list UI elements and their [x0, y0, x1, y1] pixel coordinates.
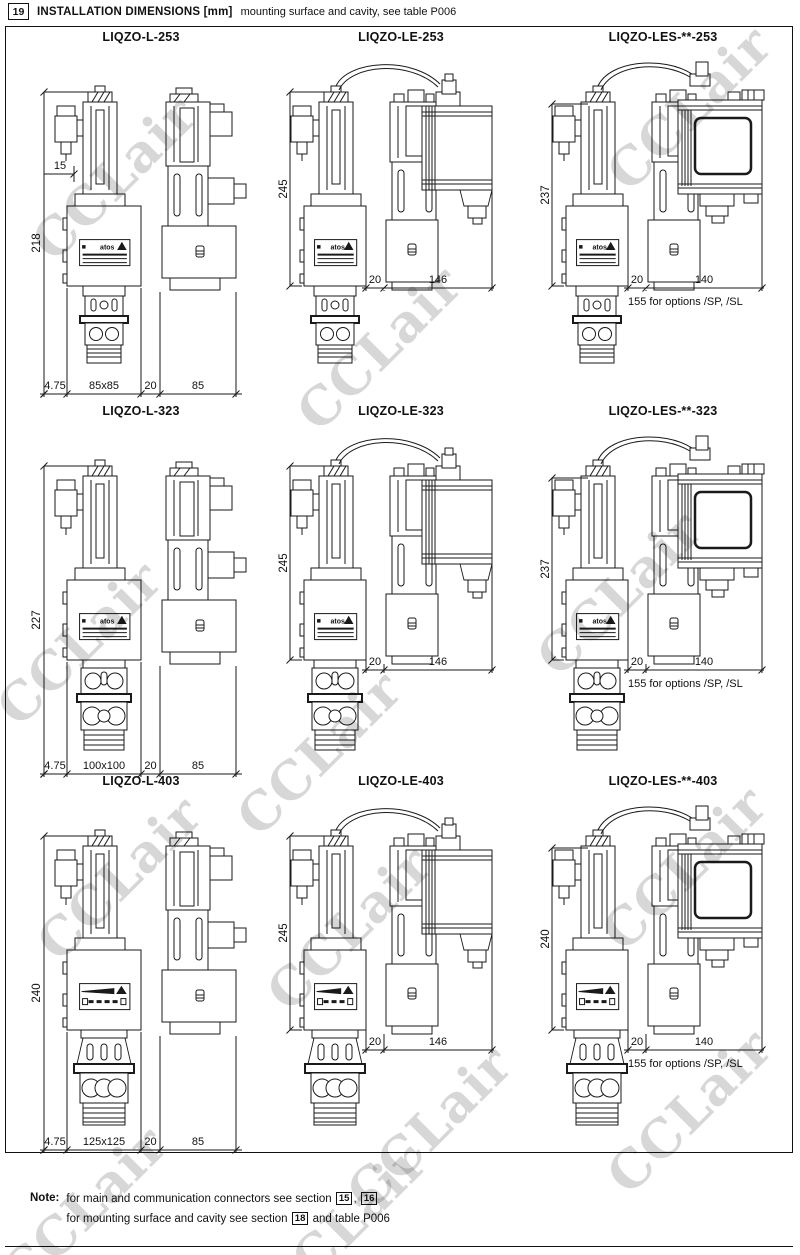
- dim-width: 140: [695, 1036, 713, 1048]
- note-separator: ,: [353, 1193, 356, 1205]
- drawing-title: LIQZO-L-253: [10, 30, 272, 48]
- dim-surface: 85x85: [89, 380, 119, 392]
- brand-label: atos: [331, 619, 346, 626]
- dim-gap: 20: [369, 656, 381, 668]
- dim-gap: 20: [144, 760, 156, 772]
- dim-spacer: 4.75: [44, 1136, 65, 1148]
- valve-drawing-cell: LIQZO-L-323atos2274.75100x1002085: [10, 404, 272, 791]
- note-line2-suffix: and table P006: [313, 1213, 390, 1225]
- drawing-title: LIQZO-LE-323: [270, 404, 532, 422]
- dim-width: 85: [192, 380, 204, 392]
- drawing-title: LIQZO-LES-**-253: [532, 30, 794, 48]
- brand-label: atos: [593, 245, 608, 252]
- note-line-1: for main and communication connectors se…: [66, 1192, 390, 1207]
- valve-drawing-cell: LIQZO-LES-**-40324020140155 for options …: [532, 774, 794, 1161]
- valve-drawing-cell: LIQZO-L-253atos218154.7585x852085: [10, 30, 272, 417]
- section-ref-15: 15: [336, 1192, 353, 1205]
- dim-spacer: 4.75: [44, 760, 65, 772]
- dim-height: 218: [31, 233, 43, 252]
- dim-gap: 20: [144, 1136, 156, 1148]
- note-line1-text: for main and communication connectors se…: [66, 1193, 331, 1205]
- valve-drawing-cell: LIQZO-LE-253atos24520146: [270, 30, 532, 417]
- valve-drawing-cell: LIQZO-LES-**-253atos23720140155 for opti…: [532, 30, 794, 417]
- brand-label: atos: [593, 619, 608, 626]
- dim-width: 146: [429, 1036, 447, 1048]
- drawing-title: LIQZO-L-323: [10, 404, 272, 422]
- dim-width: 146: [429, 274, 447, 286]
- note-line2-text: for mounting surface and cavity see sect…: [66, 1213, 287, 1225]
- dim-width: 85: [192, 1136, 204, 1148]
- dim-surface: 125x125: [83, 1136, 125, 1148]
- dim-height: 245: [278, 179, 290, 198]
- note-label: Note:: [30, 1192, 59, 1232]
- brand-label: atos: [331, 245, 346, 252]
- valve-drawing: 24520146: [270, 792, 532, 1156]
- drawing-title: LIQZO-LES-**-403: [532, 774, 794, 792]
- drawing-title: LIQZO-LE-253: [270, 30, 532, 48]
- valve-drawing: atos2274.75100x1002085: [10, 422, 272, 786]
- option-note: 155 for options /SP, /SL: [628, 1058, 743, 1070]
- datasheet-page: 19 INSTALLATION DIMENSIONS [mm] mounting…: [0, 0, 800, 1255]
- dim-gap: 20: [369, 1036, 381, 1048]
- drawing-title: LIQZO-L-403: [10, 774, 272, 792]
- valve-drawing-cell: LIQZO-L-4032404.75125x1252085: [10, 774, 272, 1161]
- brand-label: atos: [100, 245, 115, 252]
- valve-drawing-cell: LIQZO-LE-323atos24520146: [270, 404, 532, 791]
- dim-height: 237: [540, 185, 552, 204]
- dim-surface: 100x100: [83, 760, 125, 772]
- dim-gap: 20: [631, 274, 643, 286]
- bottom-rule: [5, 1246, 793, 1247]
- note-line-2: for mounting surface and cavity see sect…: [66, 1212, 390, 1227]
- dim-height: 227: [31, 610, 43, 629]
- valve-drawing: 24020140155 for options /SP, /SL: [532, 792, 794, 1156]
- dim-gap: 20: [631, 1036, 643, 1048]
- dim-width: 146: [429, 656, 447, 668]
- brand-label: atos: [100, 619, 115, 626]
- valve-drawing-cell: LIQZO-LES-**-323atos23720140155 for opti…: [532, 404, 794, 791]
- option-note: 155 for options /SP, /SL: [628, 678, 743, 690]
- valve-drawing: 2404.75125x1252085: [10, 792, 272, 1156]
- section-ref-16: 16: [361, 1192, 378, 1205]
- dim-gap: 20: [631, 656, 643, 668]
- valve-drawing: atos23720140155 for options /SP, /SL: [532, 422, 794, 786]
- dim-height: 245: [278, 553, 290, 572]
- option-note: 155 for options /SP, /SL: [628, 296, 743, 308]
- dim-width: 140: [695, 656, 713, 668]
- dim-offset: 15: [54, 160, 66, 172]
- dim-width: 140: [695, 274, 713, 286]
- dim-height: 237: [540, 559, 552, 578]
- valve-drawing: atos24520146: [270, 422, 532, 786]
- note-body: for main and communication connectors se…: [66, 1192, 390, 1232]
- dim-spacer: 4.75: [44, 380, 65, 392]
- section-ref-18: 18: [292, 1212, 309, 1225]
- valve-drawing-cell: LIQZO-LE-40324520146: [270, 774, 532, 1161]
- valve-drawing: atos23720140155 for options /SP, /SL: [532, 48, 794, 412]
- dim-gap: 20: [369, 274, 381, 286]
- drawings-grid: LIQZO-L-253atos218154.7585x852085LIQZO-L…: [0, 0, 800, 1255]
- dim-height: 240: [540, 929, 552, 948]
- drawing-title: LIQZO-LES-**-323: [532, 404, 794, 422]
- drawing-title: LIQZO-LE-403: [270, 774, 532, 792]
- dim-height: 245: [278, 923, 290, 942]
- footnote: Note: for main and communication connect…: [30, 1192, 390, 1232]
- dim-gap: 20: [144, 380, 156, 392]
- dim-width: 85: [192, 760, 204, 772]
- valve-drawing: atos218154.7585x852085: [10, 48, 272, 412]
- valve-drawing: atos24520146: [270, 48, 532, 412]
- dim-height: 240: [31, 983, 43, 1002]
